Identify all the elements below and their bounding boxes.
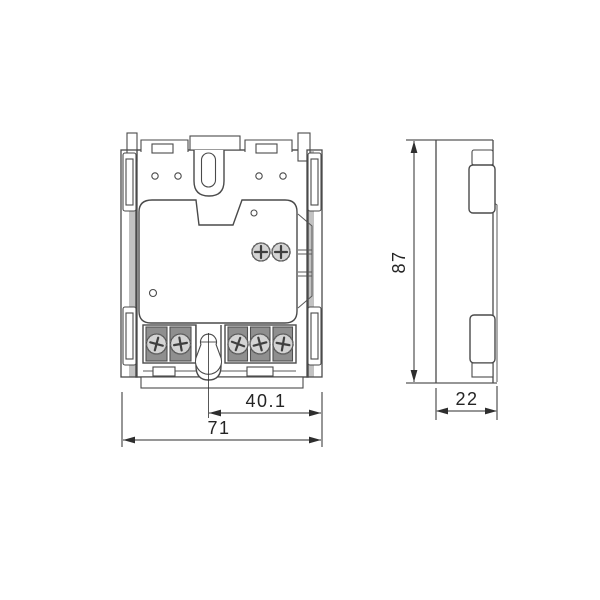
drawing-canvas: 40.1 71 87 22 xyxy=(0,0,600,600)
hole xyxy=(280,173,286,179)
side-terminal-cover-bottom xyxy=(470,315,495,363)
oval-mounting-slot xyxy=(202,153,216,187)
dimension-label-22: 22 xyxy=(455,389,478,409)
terminal-block-right xyxy=(225,325,296,363)
rail-clip-slot xyxy=(311,159,318,205)
top-bar-left-notch xyxy=(152,144,173,153)
arrow-left xyxy=(123,437,135,444)
bottom-foot-right xyxy=(247,367,273,376)
side-top-tab xyxy=(472,150,493,165)
dimension-label-40-1: 40.1 xyxy=(245,391,286,411)
terminal-screw xyxy=(250,334,270,354)
top-bar-right-notch xyxy=(256,144,277,153)
plate-hole-top xyxy=(251,210,257,216)
technical-drawing: 40.1 71 87 22 xyxy=(0,0,600,600)
plate-screw xyxy=(252,243,270,261)
rail-clip-slot xyxy=(126,313,133,359)
terminal-screw xyxy=(171,334,191,354)
arrow-right xyxy=(309,410,321,417)
terminal-screw xyxy=(273,334,293,354)
arrow-left xyxy=(436,408,448,415)
hole xyxy=(175,173,181,179)
rail-clip-slot xyxy=(126,159,133,205)
dimension-height: 87 xyxy=(389,141,417,382)
arrow-right xyxy=(485,408,497,415)
rail-clip-slot xyxy=(311,313,318,359)
plate-hole-bottom xyxy=(150,290,157,297)
side-terminal-cover-top xyxy=(469,165,495,213)
side-bottom-step xyxy=(472,363,493,377)
dimension-total-width: 71 xyxy=(122,392,321,447)
housing-bottom-step xyxy=(141,377,303,388)
side-view xyxy=(406,140,497,383)
dimension-label-71: 71 xyxy=(207,418,230,438)
front-view xyxy=(121,133,322,388)
plate-screw xyxy=(272,243,290,261)
arrow-left xyxy=(209,410,221,417)
arrow-right xyxy=(309,437,321,444)
hole xyxy=(256,173,262,179)
mounting-tab xyxy=(194,150,224,196)
terminal-block-left xyxy=(143,325,196,363)
dimension-depth: 22 xyxy=(436,386,497,420)
dimension-label-87: 87 xyxy=(389,250,409,273)
terminal-screw xyxy=(228,334,248,354)
bottom-foot-left xyxy=(153,367,175,376)
hole xyxy=(152,173,158,179)
top-bar-center xyxy=(190,136,240,150)
terminal-screw xyxy=(147,334,167,354)
arrow-down xyxy=(411,370,418,382)
arrow-up xyxy=(411,141,418,153)
